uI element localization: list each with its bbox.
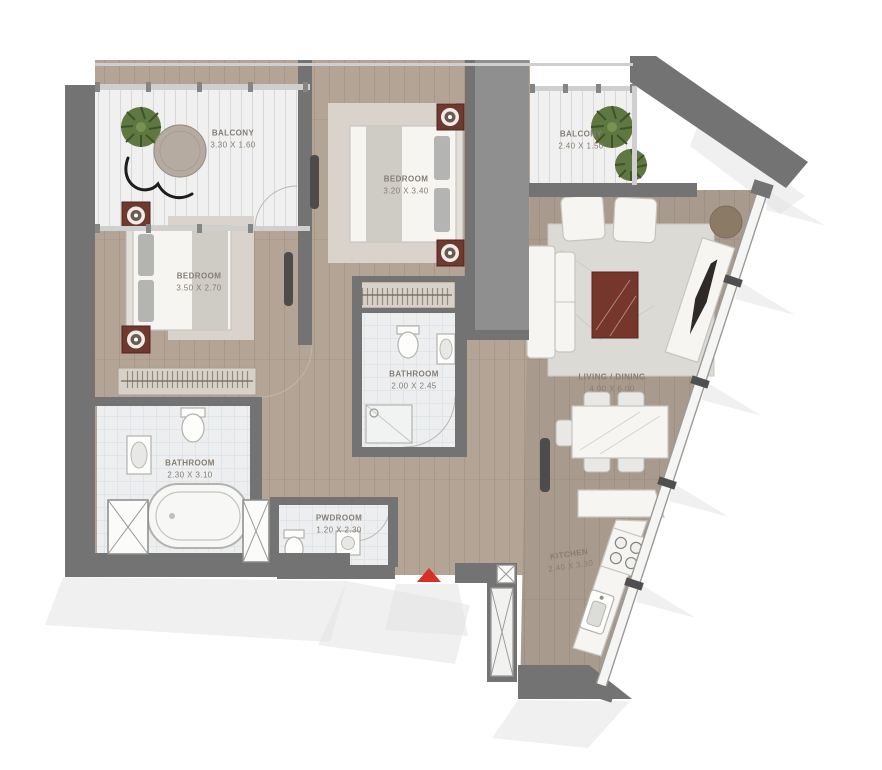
room-label-balcony-1: BALCONY 3.30 X 1.60 bbox=[210, 128, 255, 153]
room-name: LIVING / DINING bbox=[578, 372, 645, 384]
room-label-bedroom-1: BEDROOM 3.50 X 2.70 bbox=[176, 271, 221, 296]
room-name: BALCONY bbox=[212, 128, 254, 140]
room-label-bedroom-2: BEDROOM 3.20 X 3.40 bbox=[383, 174, 428, 199]
room-label-bathroom-1: BATHROOM 2.30 X 3.10 bbox=[165, 458, 215, 483]
floorplan-graphic bbox=[0, 0, 882, 770]
room-label-balcony-2: BALCONY 2.40 X 1.50 bbox=[558, 129, 603, 154]
sink-icon bbox=[437, 334, 455, 364]
room-label-powder-room: PWDROOM 1.20 X 2.30 bbox=[316, 513, 362, 538]
room-label-bathroom-2: BATHROOM 2.00 X 2.45 bbox=[389, 369, 439, 394]
bathtub-icon bbox=[148, 484, 248, 548]
plant-icon bbox=[121, 107, 161, 147]
toilet-icon bbox=[181, 408, 205, 442]
toilet-icon bbox=[397, 326, 419, 358]
room-name: BALCONY bbox=[560, 129, 602, 141]
room-dims: 3.50 X 2.70 bbox=[176, 283, 221, 295]
shower-icon bbox=[366, 405, 412, 443]
room-dims: 2.40 X 1.50 bbox=[558, 141, 603, 153]
room-name: BATHROOM bbox=[389, 369, 439, 381]
sofa bbox=[527, 246, 575, 358]
plant-icon bbox=[615, 149, 647, 181]
room-dims: 1.20 X 2.30 bbox=[316, 525, 361, 537]
room-dims: 3.30 X 1.60 bbox=[210, 140, 255, 152]
room-dims: 4.00 X 6.00 bbox=[589, 384, 634, 396]
coffee-table bbox=[592, 272, 638, 338]
room-name: BEDROOM bbox=[177, 271, 222, 283]
room-name: BATHROOM bbox=[165, 458, 215, 470]
room-dims: 2.00 X 2.45 bbox=[391, 381, 436, 393]
balcony-table bbox=[154, 125, 206, 177]
wardrobe-bedroom-2 bbox=[354, 282, 455, 308]
room-dims: 3.20 X 3.40 bbox=[383, 186, 428, 198]
room-dims: 2.30 X 3.10 bbox=[167, 470, 212, 482]
wardrobe-bedroom-1 bbox=[118, 368, 256, 395]
room-name: PWDROOM bbox=[316, 513, 362, 525]
sink-icon bbox=[127, 436, 151, 474]
floor-plan: BALCONY 3.30 X 1.60 BEDROOM 3.50 X 2.70 … bbox=[0, 0, 882, 770]
room-label-living-dining: LIVING / DINING 4.00 X 6.00 bbox=[578, 372, 645, 397]
room-name: BEDROOM bbox=[384, 174, 429, 186]
side-table bbox=[710, 206, 742, 238]
